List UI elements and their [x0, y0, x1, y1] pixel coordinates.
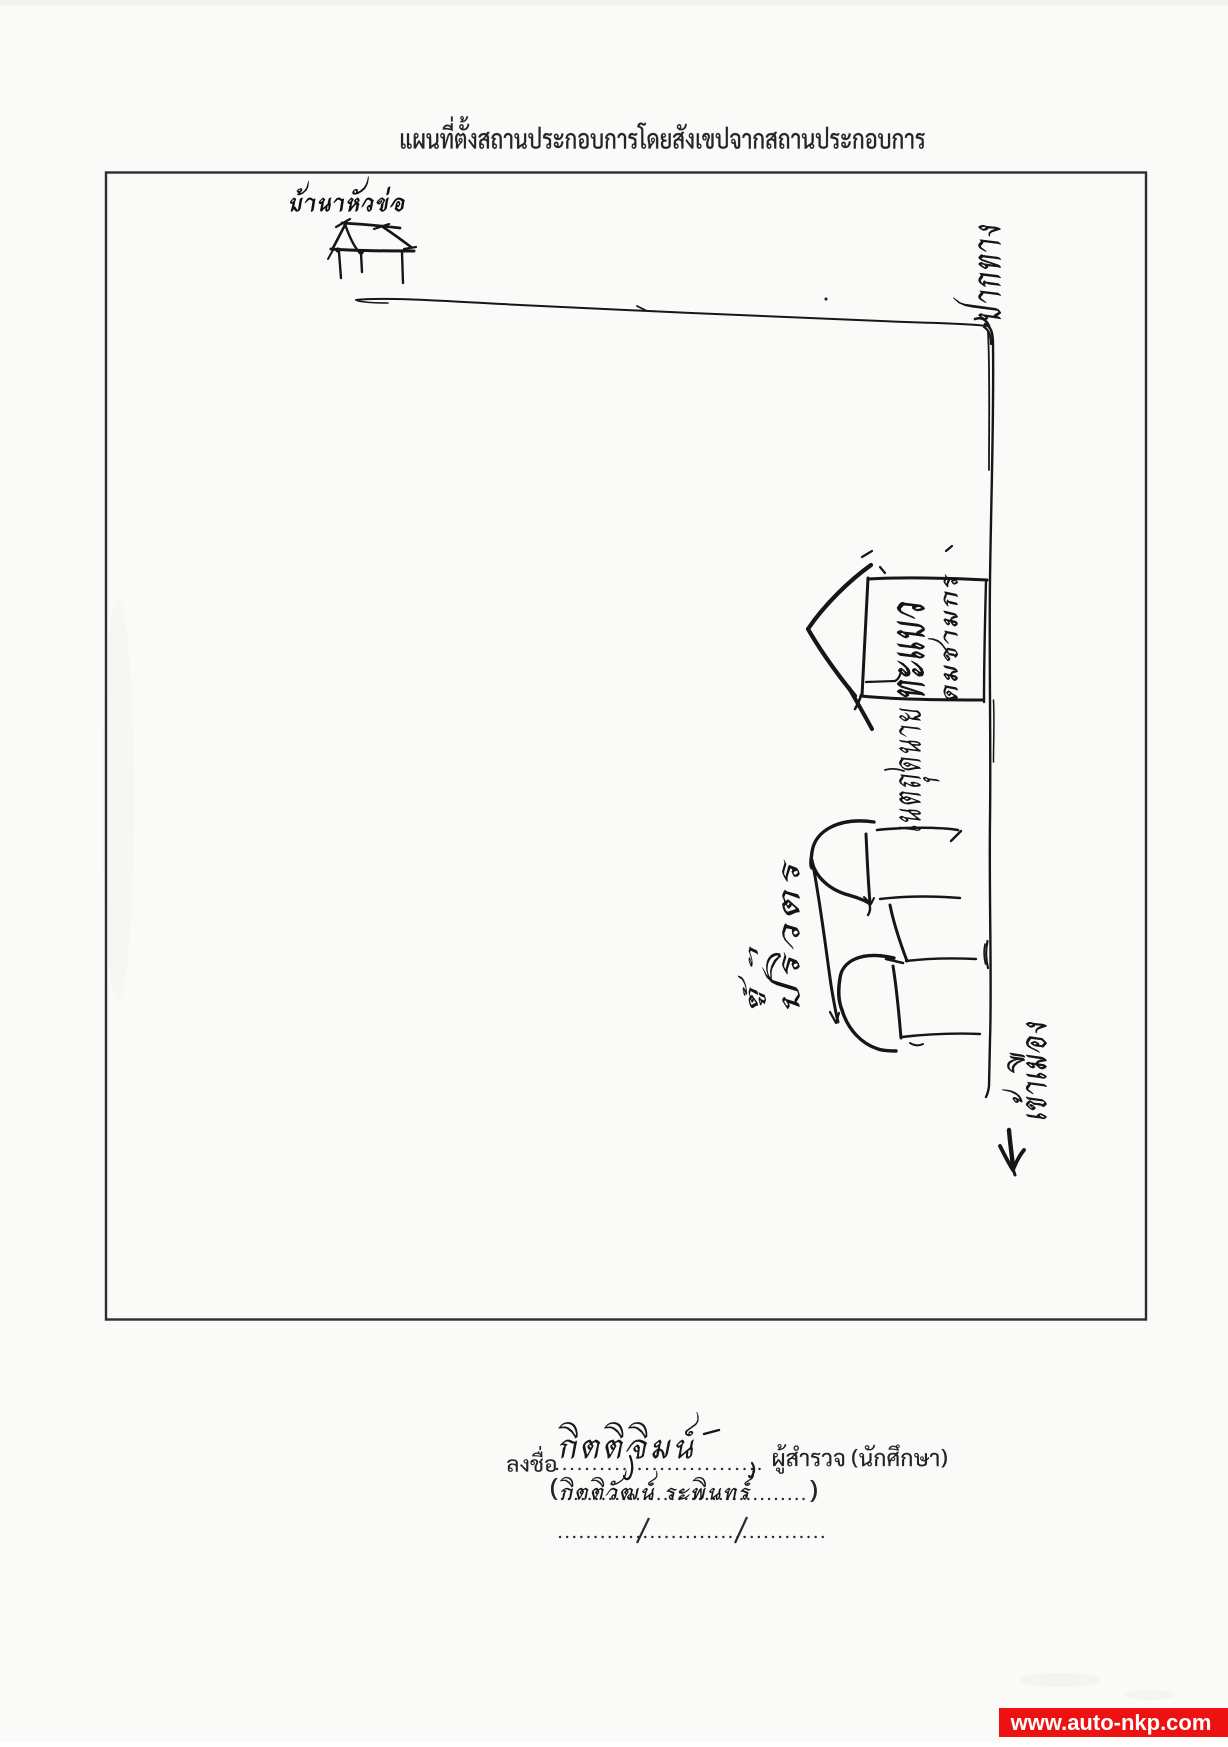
svg-text:www.auto-nkp.com: www.auto-nkp.com — [1010, 1710, 1212, 1735]
